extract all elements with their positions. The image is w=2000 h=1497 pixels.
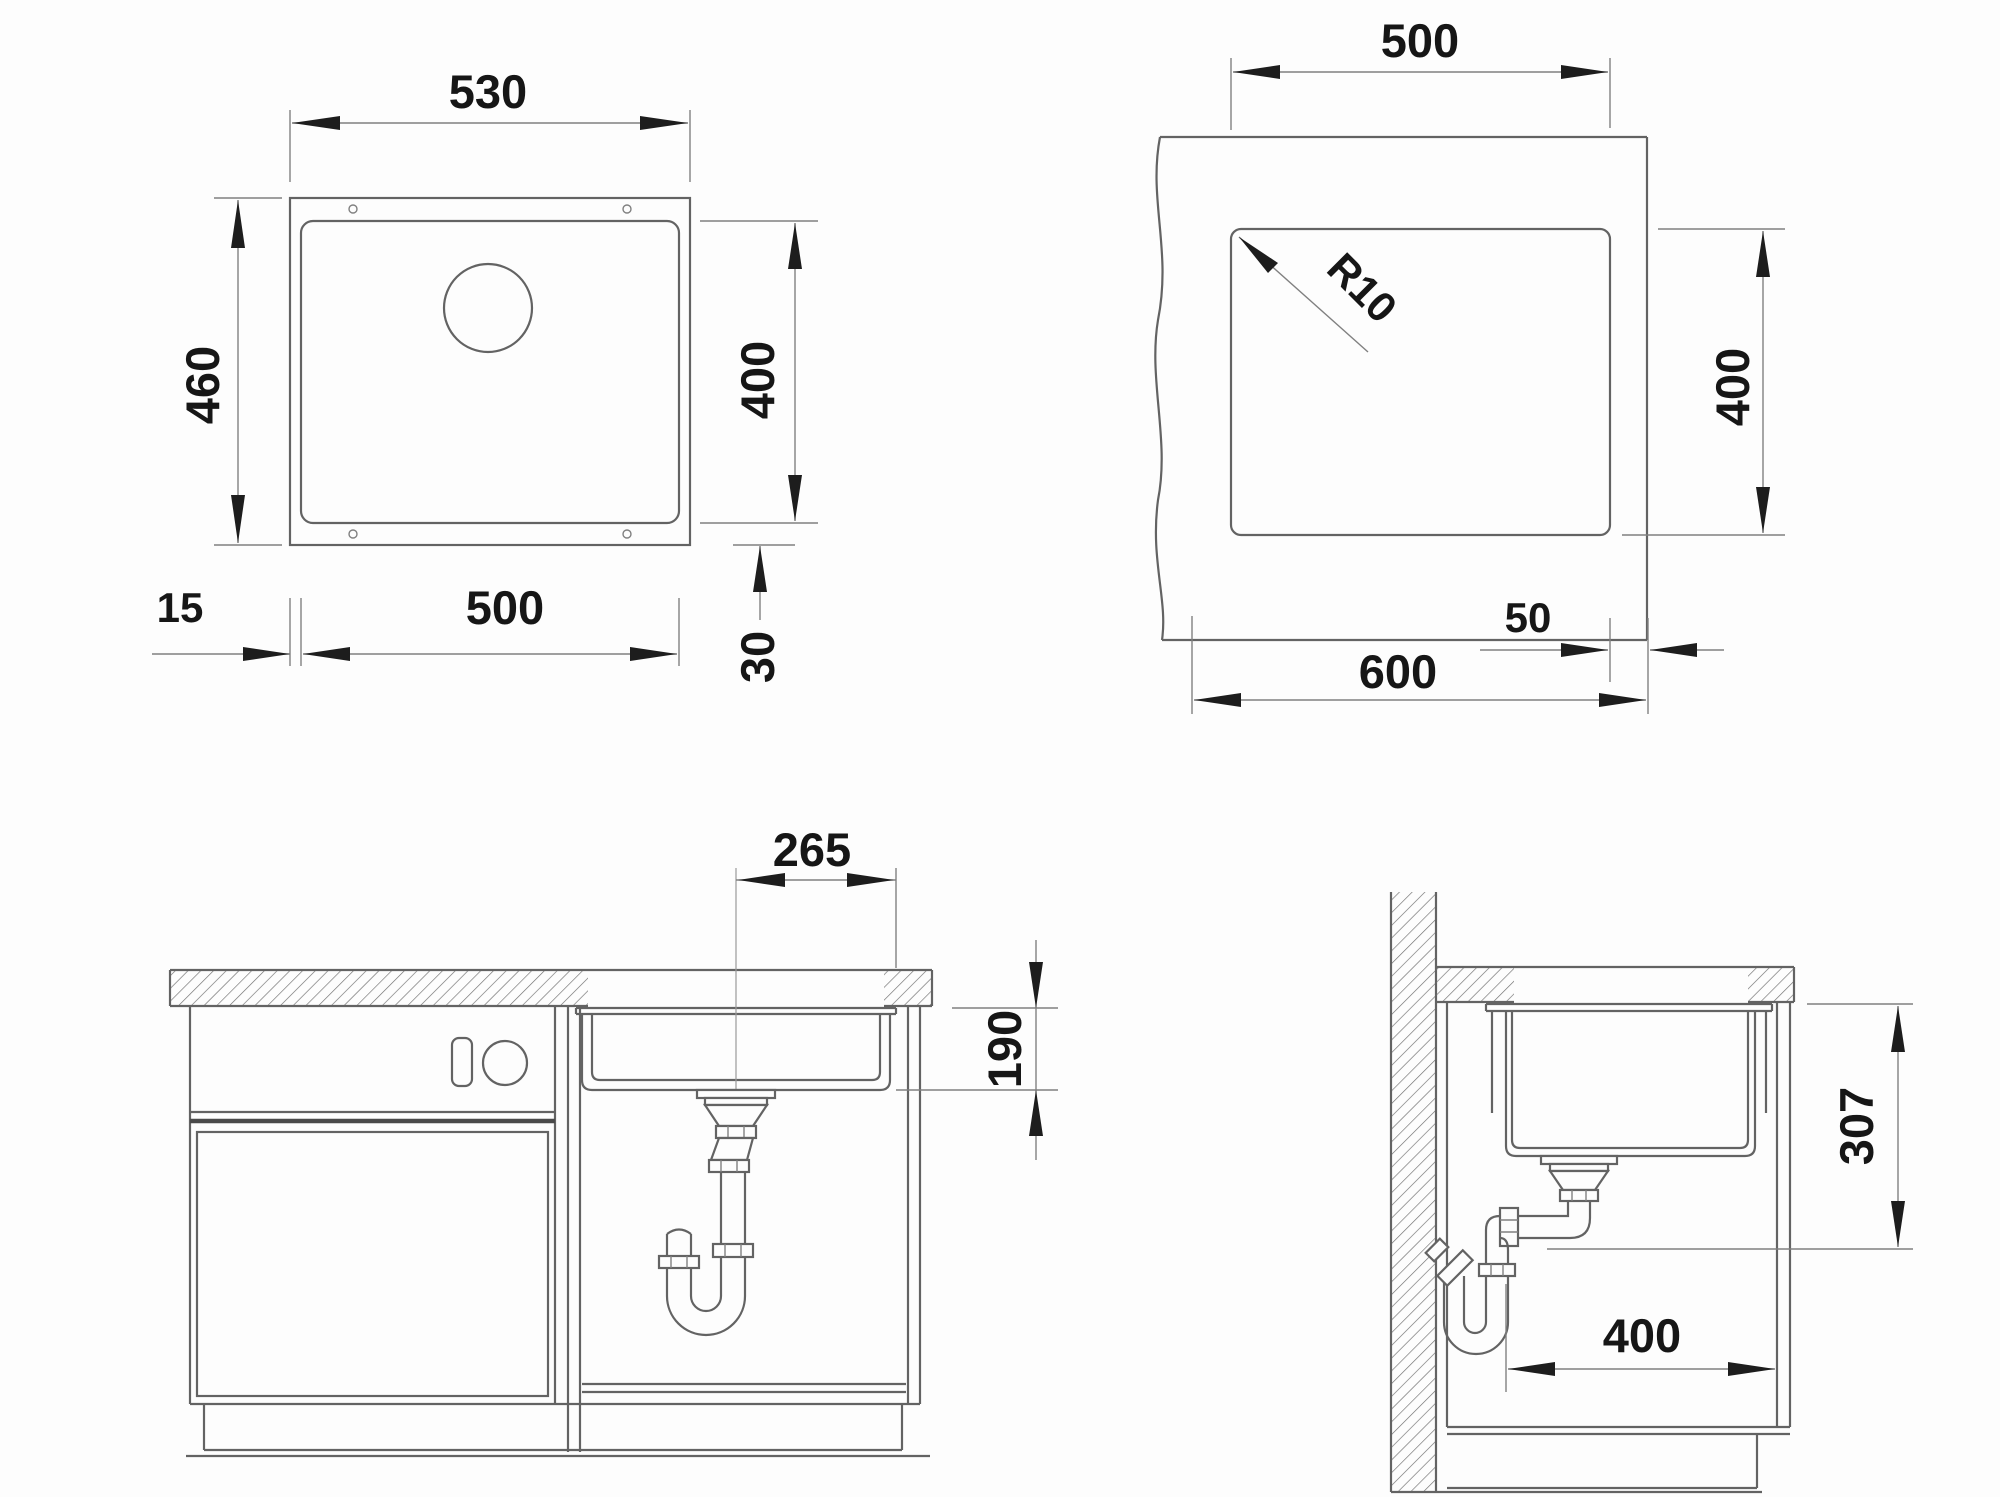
dim-400-label: 400 [1706, 348, 1759, 426]
arrowhead [1891, 1201, 1905, 1247]
dim-corner-radius: R10 [1239, 237, 1406, 352]
countertop-hatch [1748, 967, 1794, 1002]
dim-500-label: 500 [1381, 14, 1459, 67]
bowl-inner-wall [1512, 1011, 1748, 1148]
arrowhead [231, 200, 245, 248]
cabinet-front [186, 1006, 930, 1456]
dim-530-label: 530 [449, 65, 527, 118]
screw-hole [349, 530, 357, 538]
view-worktop-cutout: 500 R10 400 50 [1155, 14, 1785, 714]
dim-r10-label: R10 [1318, 244, 1406, 332]
dim-30-label: 30 [731, 631, 784, 683]
arrowhead [1194, 693, 1241, 707]
dim-307-label: 307 [1830, 1087, 1883, 1165]
arrowhead [1728, 1362, 1775, 1376]
arrowhead [753, 546, 767, 592]
view-front-section: 265 190 [170, 823, 1058, 1456]
cabinet-side [1391, 1002, 1790, 1492]
arrowhead [847, 873, 894, 887]
dim-460-label: 460 [176, 346, 229, 424]
arrowhead [640, 116, 688, 130]
worktop-break-line [1155, 137, 1163, 640]
screw-hole [623, 530, 631, 538]
dim-190-label: 190 [978, 1010, 1031, 1088]
technical-drawing-sheet: 530 460 400 [0, 0, 2000, 1497]
bowl-outer-wall [1506, 1011, 1755, 1156]
screw-hole [349, 205, 357, 213]
cutout-rect [1231, 229, 1610, 535]
dim-bowl-width-row: 15 500 [152, 581, 679, 666]
arrowhead [1029, 962, 1043, 1008]
dim-600-label: 600 [1359, 645, 1437, 698]
dim-outlet-drop: 307 [1547, 1004, 1913, 1249]
arrowhead [1650, 643, 1697, 657]
arrowhead [303, 647, 350, 661]
arrowhead [1233, 65, 1280, 79]
dim-cutout-width: 500 [1231, 14, 1610, 130]
countertop-hatch [1436, 967, 1514, 1002]
dim-bowl-depth: 400 [700, 221, 818, 523]
dim-drain-offset: 265 [736, 823, 896, 968]
view-sink-plan: 530 460 400 [152, 65, 818, 683]
dim-overall-width: 530 [290, 65, 690, 182]
sink-outer-rect [290, 198, 690, 545]
trap-bend [1444, 1322, 1508, 1354]
arrowhead [630, 647, 677, 661]
dim-265-label: 265 [773, 823, 851, 876]
arrowhead [1508, 1362, 1555, 1376]
arrowhead [1756, 487, 1770, 533]
siphon-assembly-side [1426, 1156, 1617, 1354]
arrowhead [292, 116, 340, 130]
appliance-door [197, 1132, 548, 1396]
sink-bowl-rect [301, 221, 679, 523]
screw-hole [623, 205, 631, 213]
dim-clearance: 400 [1506, 1284, 1775, 1392]
dim-overall-depth: 460 [176, 198, 282, 545]
dim-500-label: 500 [466, 581, 544, 634]
sink-installation-drawing: 530 460 400 [0, 0, 2000, 1497]
arrowhead [1756, 231, 1770, 277]
trap-bend [667, 1296, 745, 1335]
wall-hatch [1391, 892, 1436, 1492]
arrowhead [1599, 693, 1646, 707]
arrowhead [1029, 1090, 1043, 1136]
control-knob [483, 1041, 527, 1085]
arrowhead [1561, 65, 1608, 79]
dim-50-label: 50 [1505, 594, 1552, 641]
control-slot [452, 1038, 472, 1086]
arrowhead [788, 475, 802, 521]
dim-rim-offset-bottom: 30 [731, 545, 795, 683]
arrowhead [788, 223, 802, 269]
drain-hole [444, 264, 532, 352]
dim-400-clearance-label: 400 [1603, 1309, 1681, 1362]
arrowhead [1239, 237, 1278, 273]
dim-400-label: 400 [731, 341, 784, 419]
countertop-hatch [170, 970, 588, 1006]
arrowhead [1891, 1006, 1905, 1052]
arrowhead [1561, 643, 1608, 657]
view-side-section: 307 400 [1391, 892, 1913, 1492]
siphon-assembly [659, 1090, 775, 1335]
arrowhead [243, 647, 290, 661]
countertop-hatch [884, 970, 932, 1006]
dim-cabinet-width: 600 [1192, 616, 1646, 714]
dim-15-label: 15 [157, 584, 204, 631]
arrowhead [231, 495, 245, 543]
